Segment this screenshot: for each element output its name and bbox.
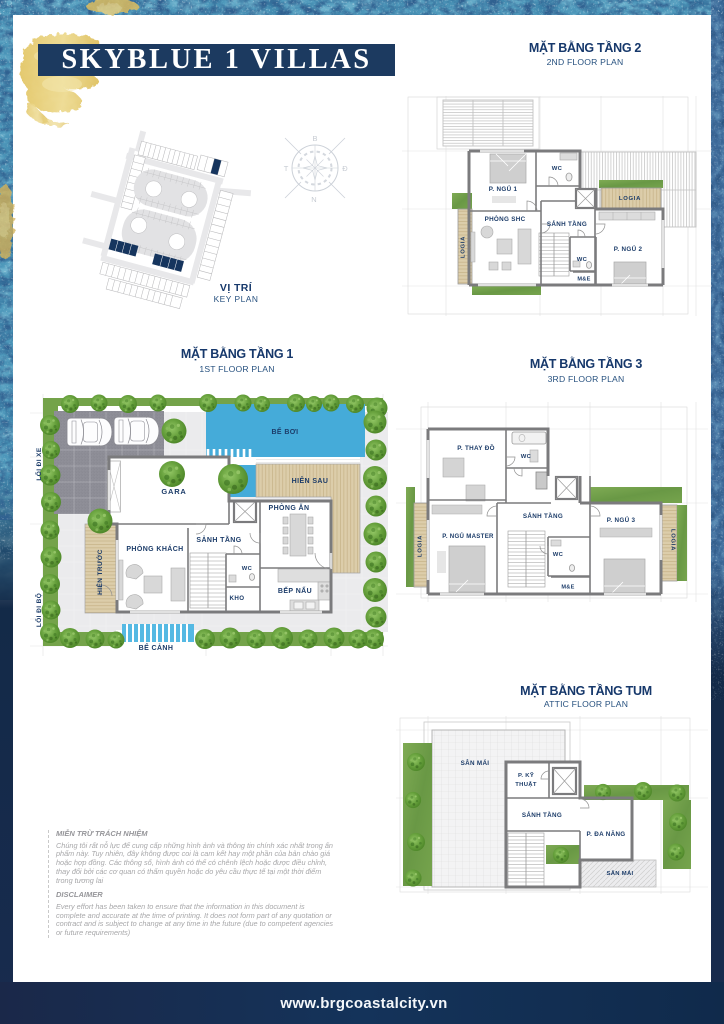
svg-text:VỊ TRÍ: VỊ TRÍ	[220, 281, 253, 294]
svg-text:LOGIA: LOGIA	[418, 535, 424, 557]
svg-text:LOGIA: LOGIA	[619, 196, 641, 202]
svg-text:HIÊN TRƯỚC: HIÊN TRƯỚC	[95, 549, 104, 595]
svg-text:PHÒNG ĂN: PHÒNG ĂN	[269, 503, 310, 512]
svg-text:M&E: M&E	[561, 585, 574, 591]
svg-text:BỂ BƠI: BỂ BƠI	[271, 427, 298, 436]
svg-text:WC: WC	[577, 257, 588, 263]
svg-text:WC: WC	[553, 552, 564, 558]
svg-text:LOGIA: LOGIA	[461, 236, 467, 258]
svg-text:KHO: KHO	[230, 595, 245, 602]
svg-text:PHÒNG KHÁCH: PHÒNG KHÁCH	[126, 544, 183, 553]
svg-text:GARA: GARA	[161, 487, 186, 496]
svg-text:LỐI ĐI BỘ: LỐI ĐI BỘ	[33, 593, 43, 627]
svg-text:HIÊN SAU: HIÊN SAU	[292, 476, 329, 485]
svg-text:P. NGỦ 3: P. NGỦ 3	[607, 515, 636, 524]
svg-text:LOGIA: LOGIA	[670, 529, 676, 551]
svg-text:P. NGỦ 2: P. NGỦ 2	[614, 244, 643, 253]
svg-text:WC: WC	[521, 454, 532, 460]
svg-text:WC: WC	[552, 166, 563, 172]
svg-text:THUẬT: THUẬT	[515, 781, 537, 788]
svg-text:M&E: M&E	[577, 277, 590, 283]
svg-text:www.brgcoastalcity.vn: www.brgcoastalcity.vn	[279, 995, 447, 1012]
svg-text:KEY PLAN: KEY PLAN	[214, 294, 259, 304]
svg-text:T: T	[284, 164, 289, 173]
svg-text:BỂ CẢNH: BỂ CẢNH	[139, 643, 174, 652]
svg-text:P. NGỦ 1: P. NGỦ 1	[489, 184, 518, 193]
svg-text:P. NGỦ MASTER: P. NGỦ MASTER	[442, 533, 494, 540]
svg-text:WC: WC	[242, 566, 253, 572]
svg-text:Đ: Đ	[342, 164, 348, 173]
svg-text:B: B	[312, 134, 317, 143]
svg-text:PHÒNG SHC: PHÒNG SHC	[485, 214, 526, 223]
svg-text:SÂN MÁI: SÂN MÁI	[461, 758, 490, 767]
svg-text:N: N	[311, 195, 316, 204]
svg-text:LỐI ĐI XE: LỐI ĐI XE	[33, 447, 43, 480]
svg-text:P. KỸ: P. KỸ	[518, 772, 534, 779]
svg-text:SÂN MÁI: SÂN MÁI	[607, 870, 634, 877]
svg-text:P. ĐA NĂNG: P. ĐA NĂNG	[586, 829, 625, 838]
